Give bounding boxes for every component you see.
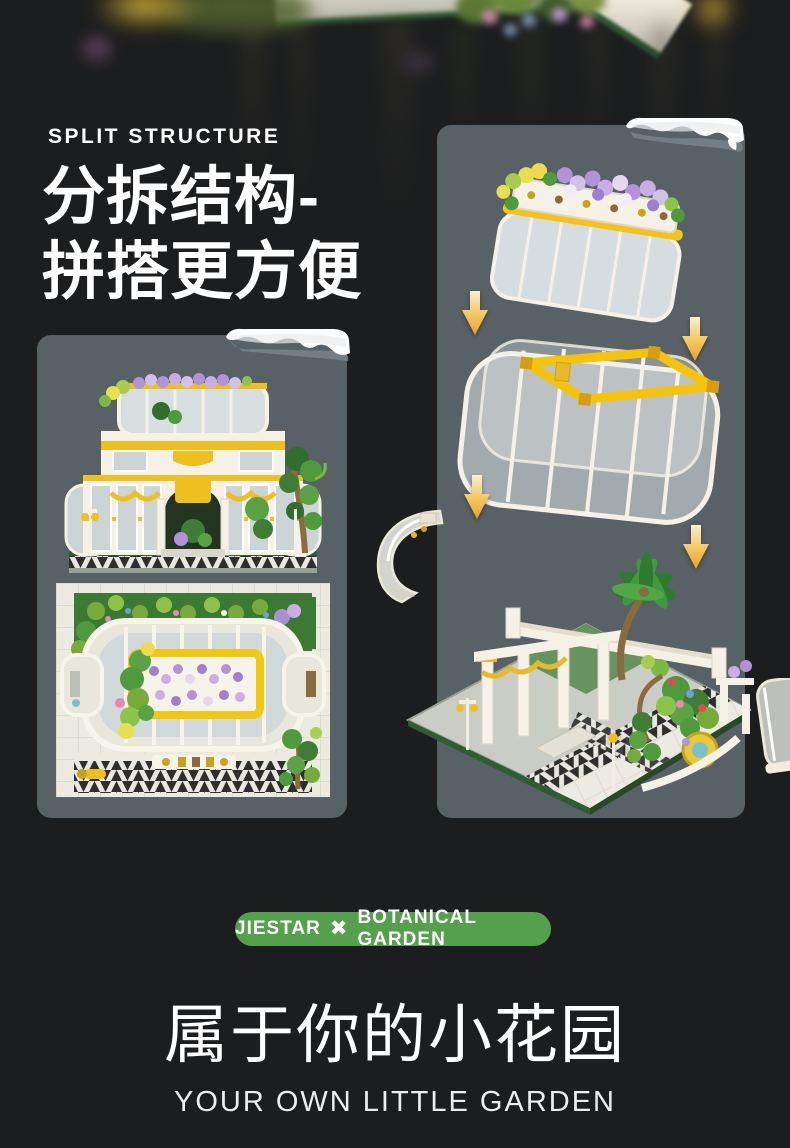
down-arrow-icon [682,317,708,361]
snow-cap-decoration [620,114,748,154]
assembled-views-card [37,335,347,818]
split-structure-title: 分拆结构- 拼搭更方便 [42,160,362,310]
split-title-line2: 拼搭更方便 [42,235,362,310]
brand-badge: JIESTAR ✖ BOTANICAL GARDEN [235,912,551,946]
down-arrow-icon [464,475,490,519]
down-arrow-icon [462,291,488,335]
split-title-line1: 分拆结构- [42,160,362,235]
exploded-view-card [437,125,745,818]
product-name: BOTANICAL GARDEN [357,907,551,951]
down-arrow-icon [683,525,709,569]
glass-endcap-piece-image [364,503,452,607]
top-view-image [56,583,330,797]
snow-cap-decoration [222,325,354,363]
brand-name: JIESTAR [235,918,321,940]
footer-subtitle-en: YOUR OWN LITTLE GARDEN [0,1086,790,1119]
footer-title-cn: 属于你的小花园 [0,984,790,1076]
exploded-roof-piece-image [476,160,704,332]
front-view-image [53,359,333,579]
promo-page: SPLIT STRUCTURE 分拆结构- 拼搭更方便 [0,0,790,1148]
glass-panel-piece-image [756,678,790,778]
split-structure-eyebrow: SPLIT STRUCTURE [48,125,280,149]
cross-icon: ✖ [330,916,349,941]
